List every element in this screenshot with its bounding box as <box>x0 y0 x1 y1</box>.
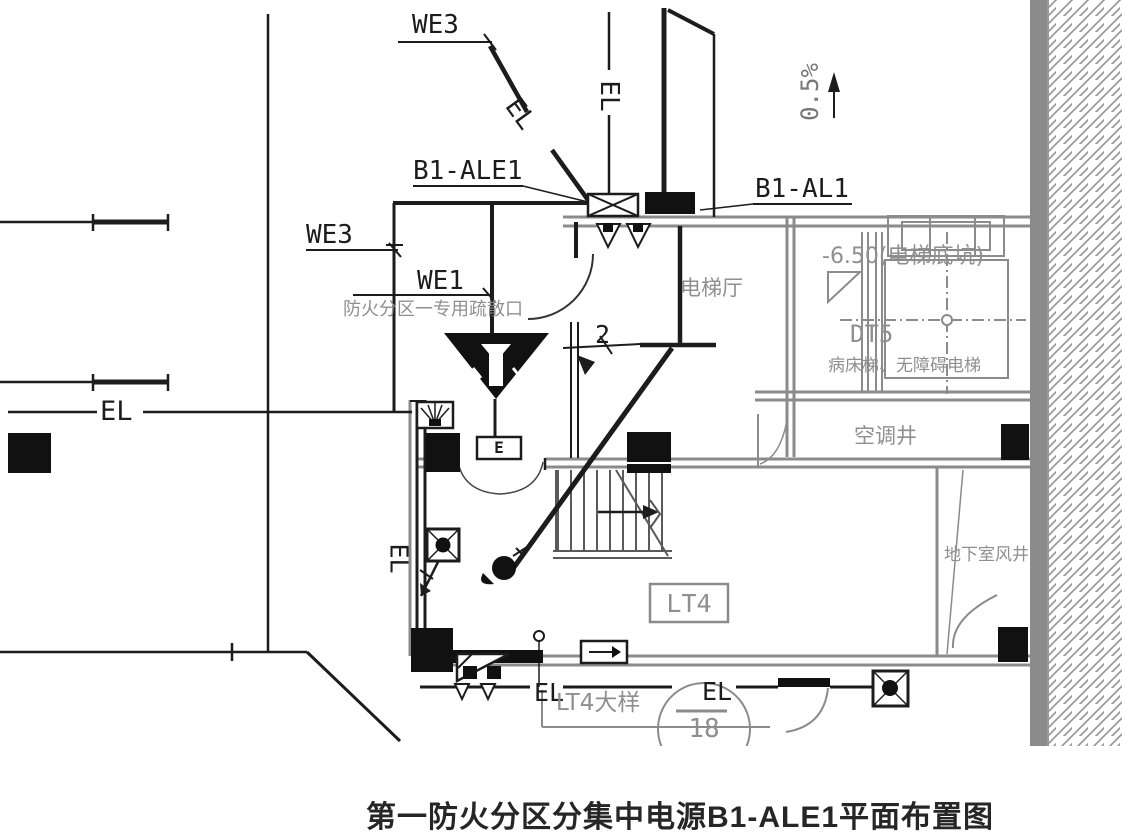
pendant-light <box>534 631 544 641</box>
fire-damper-ac-shaft <box>1001 424 1029 460</box>
room-label-ac-shaft: 空调井 <box>854 426 917 447</box>
label-slope: 0.5% <box>798 57 822 127</box>
junction-box-left <box>427 529 459 561</box>
room-label-elevator-hall: 电梯厅 <box>680 278 743 299</box>
label-el-bottom-right: EL <box>702 679 732 704</box>
exit-indicator-triangle <box>444 333 549 399</box>
fire-damper-bottom-right <box>998 627 1028 662</box>
emergency-light-fixture <box>481 556 516 584</box>
label-exit-e: E <box>477 437 521 459</box>
fire-shutter-bar <box>627 464 671 473</box>
fire-damper-left <box>8 433 51 473</box>
floor-plan-drawing: WE3 EL EL B1-ALE1 B1-AL1 0.5% WE3 WE1 防火… <box>0 0 1122 746</box>
hatched-exterior-wall <box>1030 0 1122 746</box>
label-stair-id: LT4 <box>650 584 728 622</box>
label-el-shaft: EL <box>596 76 622 116</box>
label-we1: WE1 <box>417 268 464 294</box>
room-label-basement-air-shaft: 地下室风井 <box>944 547 1029 564</box>
panel-b1-al1 <box>645 192 695 214</box>
label-we3-top: WE3 <box>412 12 459 38</box>
label-detail-sheet-number: 18 <box>686 716 722 742</box>
label-wire-count: 2 <box>595 322 610 347</box>
fire-shutter-box <box>627 432 671 462</box>
wall-speaker-box <box>417 402 453 428</box>
label-stair-detail: LT4大样 <box>556 692 640 715</box>
label-elevator-id: DT5 <box>850 322 893 346</box>
door-leaf-bar <box>778 678 830 687</box>
label-elevator-names: 病床梯、无障碍电梯 <box>828 358 981 375</box>
fire-damper-wall <box>426 433 460 472</box>
label-b1-al1: B1-AL1 <box>755 176 849 202</box>
label-el-wall: EL <box>387 539 412 579</box>
label-fire-zone-note: 防火分区一专用疏散口 <box>343 301 523 319</box>
floor-plan-page: WE3 EL EL B1-ALE1 B1-AL1 0.5% WE3 WE1 防火… <box>0 0 1122 840</box>
label-we3-left: WE3 <box>306 222 353 248</box>
label-el-left: EL <box>100 398 133 425</box>
staircase <box>553 470 672 558</box>
drawing-title: 第一防火分区分集中电源B1-ALE1平面布置图 <box>320 792 1040 836</box>
distribution-box-b1-ale1 <box>588 194 638 216</box>
junction-box-bottom <box>873 671 908 706</box>
exit-direction-sign <box>581 641 627 663</box>
label-pit-level: -6.50(电梯底坑) <box>822 246 984 268</box>
label-b1-ale1: B1-ALE1 <box>413 158 523 184</box>
